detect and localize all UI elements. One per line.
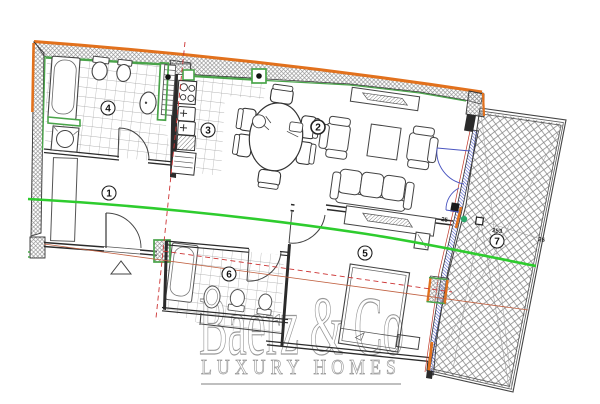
svg-text:7: 7 <box>494 236 500 247</box>
svg-text:3: 3 <box>205 125 211 136</box>
svg-text:6: 6 <box>226 269 232 280</box>
svg-text:2: 2 <box>315 122 321 133</box>
svg-text:5: 5 <box>362 248 368 259</box>
svg-text:4: 4 <box>105 103 111 114</box>
svg-text:1: 1 <box>106 188 112 199</box>
svg-text:LUXURY HOMES: LUXURY HOMES <box>201 355 401 379</box>
